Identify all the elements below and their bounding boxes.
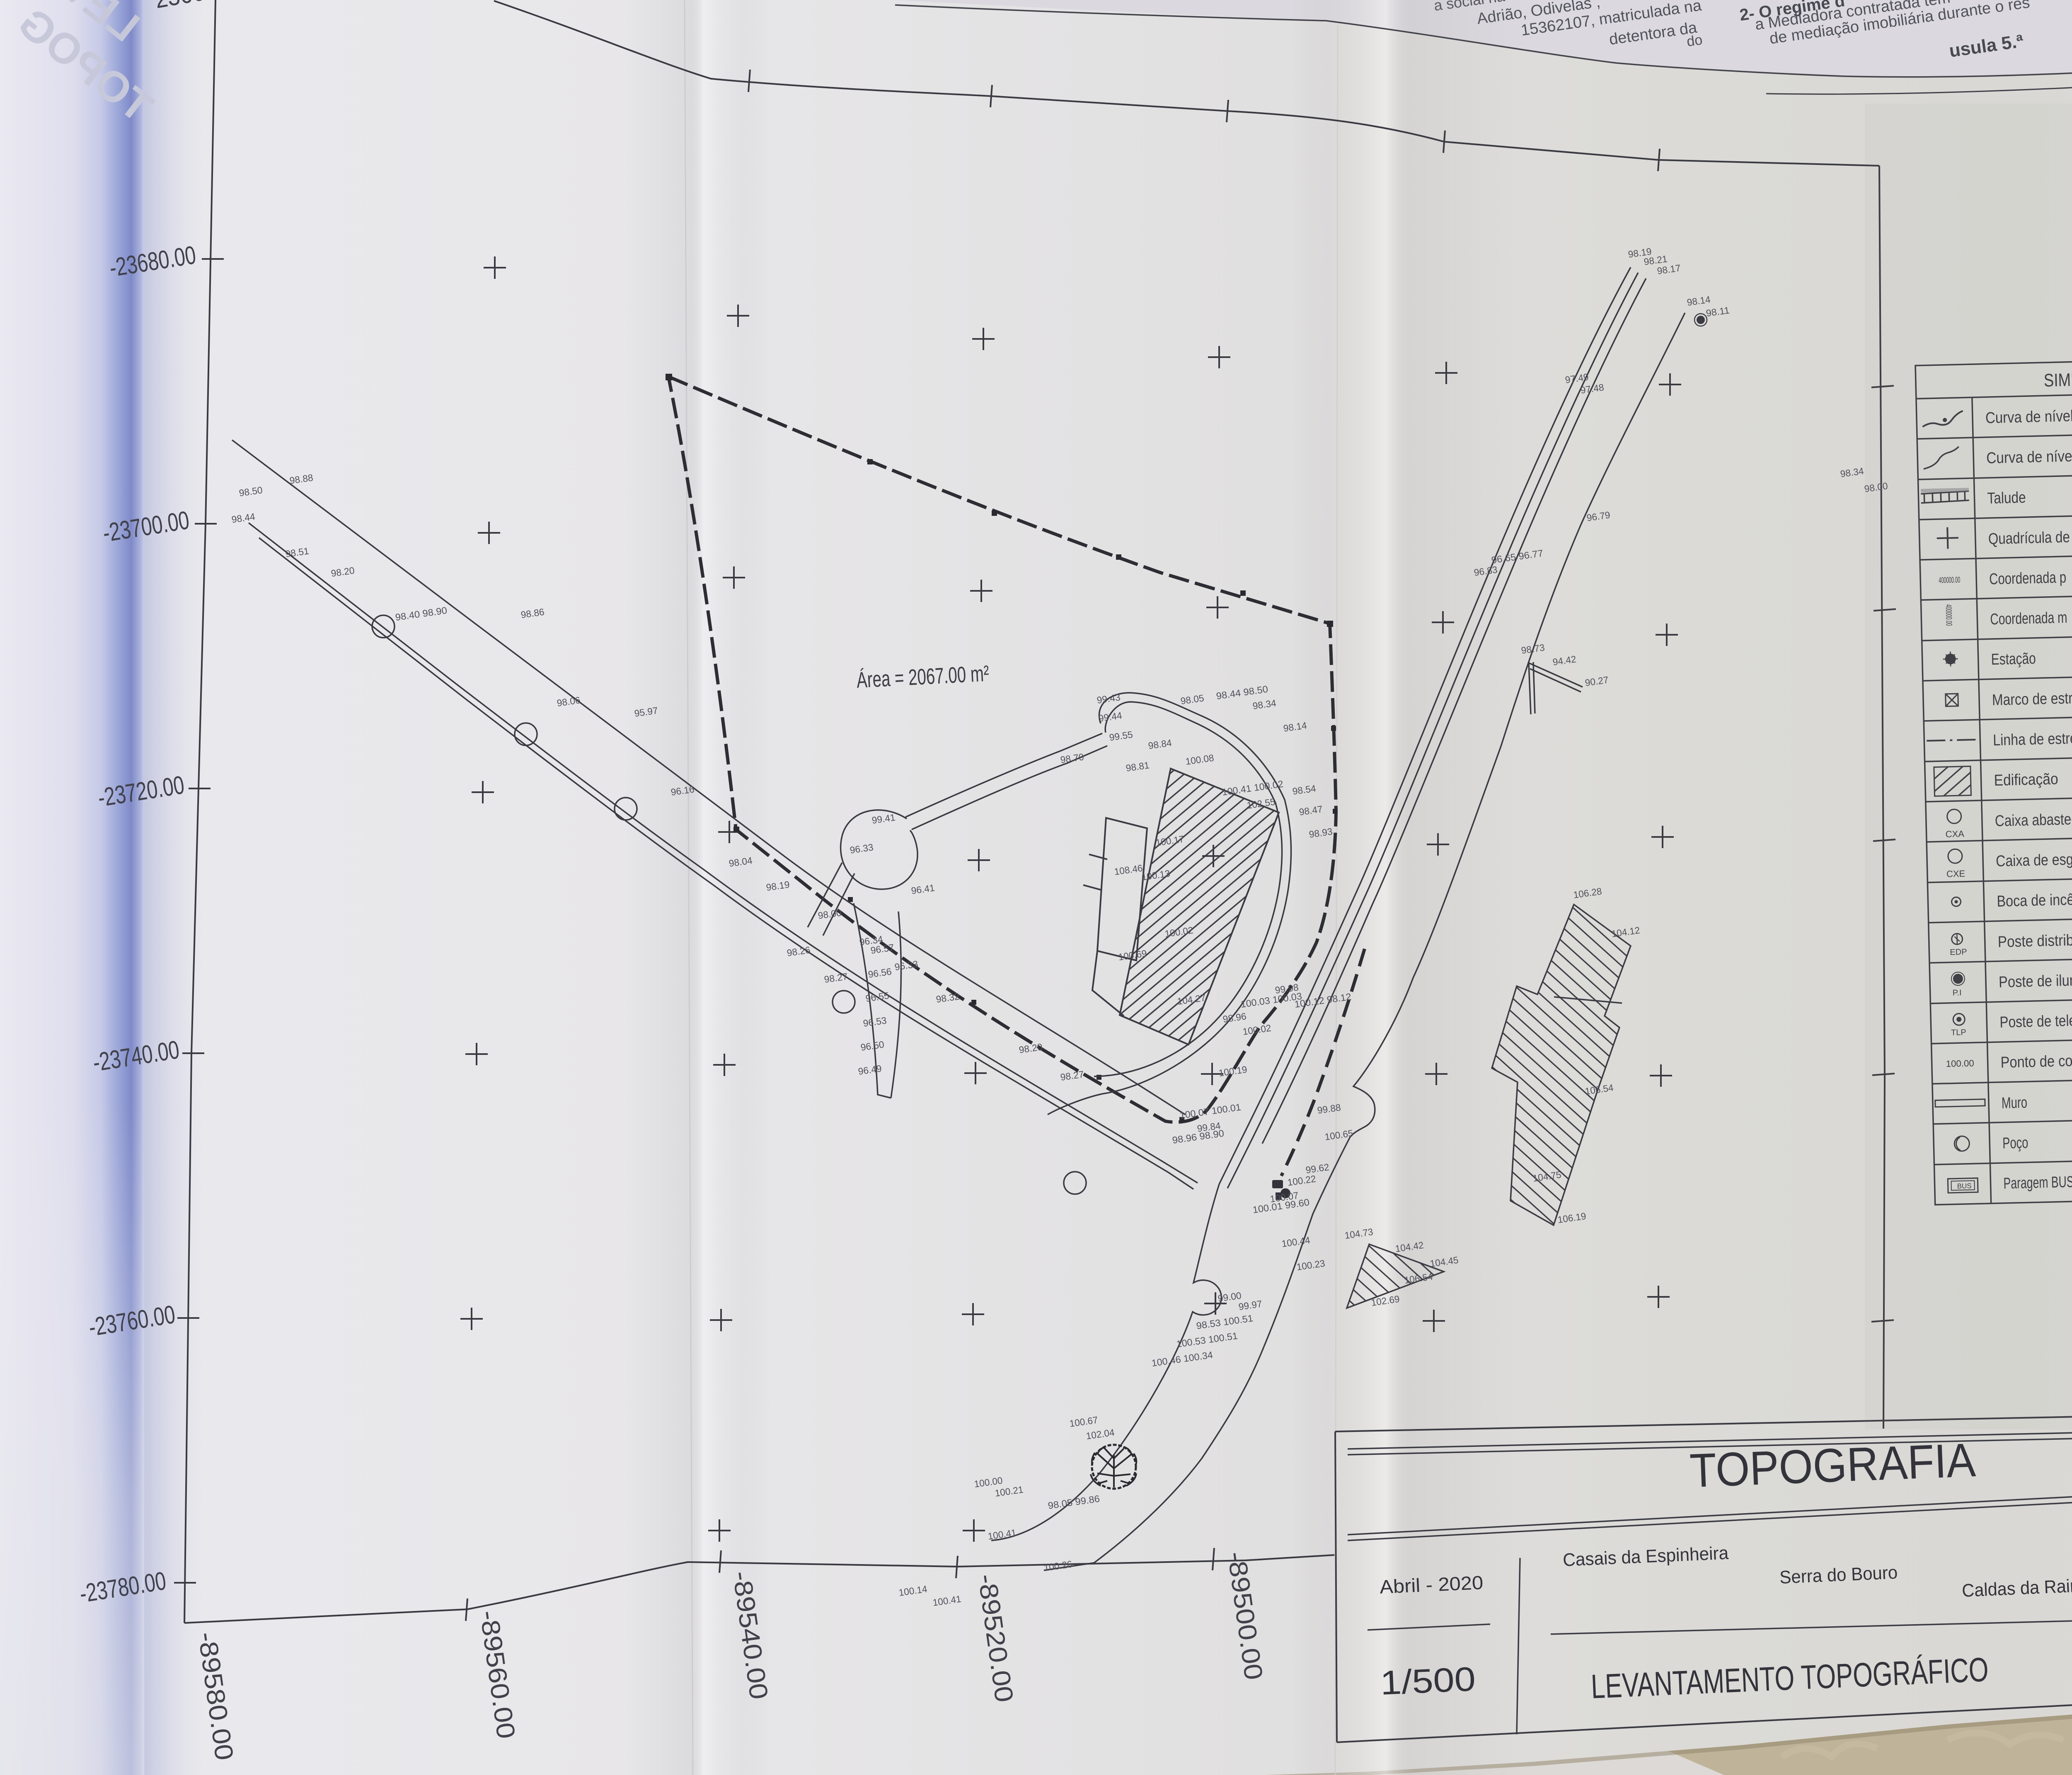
svg-text:1/500: 1/500 — [1380, 1660, 1477, 1702]
svg-text:do: do — [1686, 32, 1704, 50]
svg-text:TOPOGRAFIA: TOPOGRAFIA — [1689, 1434, 1977, 1497]
svg-text:Abril - 2020: Abril - 2020 — [1379, 1572, 1484, 1598]
